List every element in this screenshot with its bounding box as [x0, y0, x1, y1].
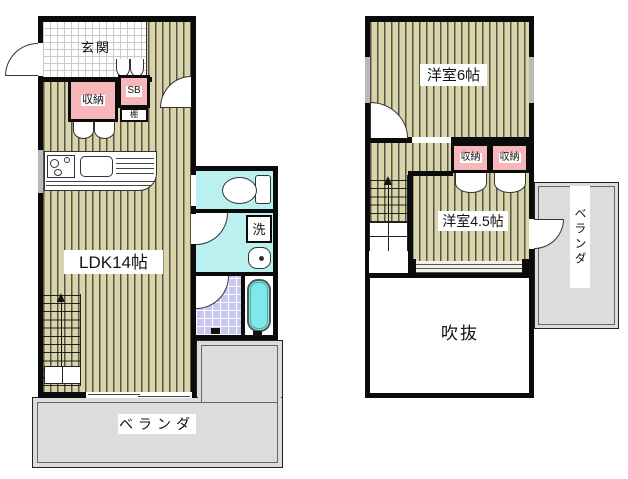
room6-window-left	[365, 57, 370, 103]
entrance-edge-line	[146, 21, 147, 78]
veranda-sliding-door	[86, 392, 192, 398]
toilet-tank	[255, 175, 271, 204]
bath-faucet-icon	[253, 331, 262, 336]
room45-label: 洋室4.5帖	[438, 211, 508, 231]
bathtub-inner-line	[250, 282, 268, 329]
stairs-1f-landing-cell	[44, 366, 63, 384]
counter-line	[116, 168, 154, 169]
closet-2f-door-icon	[455, 173, 487, 193]
washbasin-drain-icon	[259, 256, 264, 261]
stairs-1f-up-arrow-icon	[57, 293, 65, 302]
counter-line	[46, 185, 152, 186]
room6-label: 洋室6帖	[420, 64, 487, 86]
room45-sliding-window	[414, 261, 528, 273]
closet-2f-door-icon	[494, 173, 526, 193]
stairs-2f-up-arrow-icon	[384, 176, 392, 185]
stairs-2f-landing-cell	[388, 222, 408, 237]
shelf-label: 棚	[130, 111, 138, 119]
shower-fixture-icon	[211, 328, 220, 334]
room6-door-gap	[412, 137, 451, 143]
closet-2f-right: 収納	[490, 143, 529, 173]
counter-line	[116, 173, 154, 174]
wall-stub	[408, 259, 416, 274]
closet-2f-left-label: 収納	[460, 153, 482, 164]
entrance-label: 玄関	[77, 38, 115, 56]
counter-line	[46, 181, 154, 182]
counter-line	[116, 158, 154, 159]
stove-burner-icon	[50, 159, 59, 168]
closet-1f-label: 収納	[81, 95, 105, 107]
wall-sanitary-bottom	[196, 335, 278, 340]
shoe-box-label: SB	[126, 86, 141, 97]
closet-1f-door-icon	[73, 122, 94, 139]
wall-room45-top-left	[408, 171, 453, 176]
wall-2f-top	[365, 16, 534, 22]
closet-1f: 収納	[68, 79, 118, 122]
stairs-2f-center-line	[388, 182, 389, 222]
shelf-box: 棚	[120, 108, 148, 122]
stairs-1f-landing-cell	[62, 366, 81, 384]
toilet-bowl-icon	[222, 177, 257, 204]
veranda-2f-label: ベランダ	[570, 186, 590, 288]
veranda-1f-inner-line-right	[201, 345, 278, 402]
kitchen-window	[38, 150, 43, 193]
entrance-door-arc	[5, 43, 38, 76]
void-label: 吹抜	[436, 319, 484, 347]
closet-2f-right-label: 収納	[499, 153, 521, 164]
sliding-door-track	[138, 396, 190, 397]
stairs-2f-landing-cell	[388, 236, 408, 252]
ldk-label: LDK14帖	[64, 250, 163, 274]
veranda-1f-label: ベランダ	[118, 414, 196, 434]
stairs-2f-landing-cell	[369, 236, 389, 252]
stairs-2f-landing-cell	[369, 222, 389, 237]
wall-stub	[522, 259, 530, 274]
room6-window-right	[529, 57, 534, 103]
wall-sanitary-right	[273, 166, 278, 340]
wash-label-box: 洗	[246, 215, 272, 243]
kitchen-sink	[80, 156, 113, 177]
closet-2f-left: 収納	[451, 143, 490, 173]
toilet-door-gap	[191, 175, 196, 206]
stove-burner-icon	[54, 169, 62, 176]
wall-1f-top	[38, 16, 196, 22]
closet-1f-door-icon	[94, 122, 115, 139]
shoe-box: SB	[118, 75, 150, 108]
hall-2f-floor	[369, 251, 408, 273]
stove-burner-icon	[64, 157, 70, 163]
sliding-door-track	[88, 394, 140, 395]
entrance-door-gap	[38, 43, 43, 76]
floor-plan-canvas: 収納 SB 棚 LDK14帖	[0, 0, 628, 479]
counter-line	[116, 163, 154, 164]
